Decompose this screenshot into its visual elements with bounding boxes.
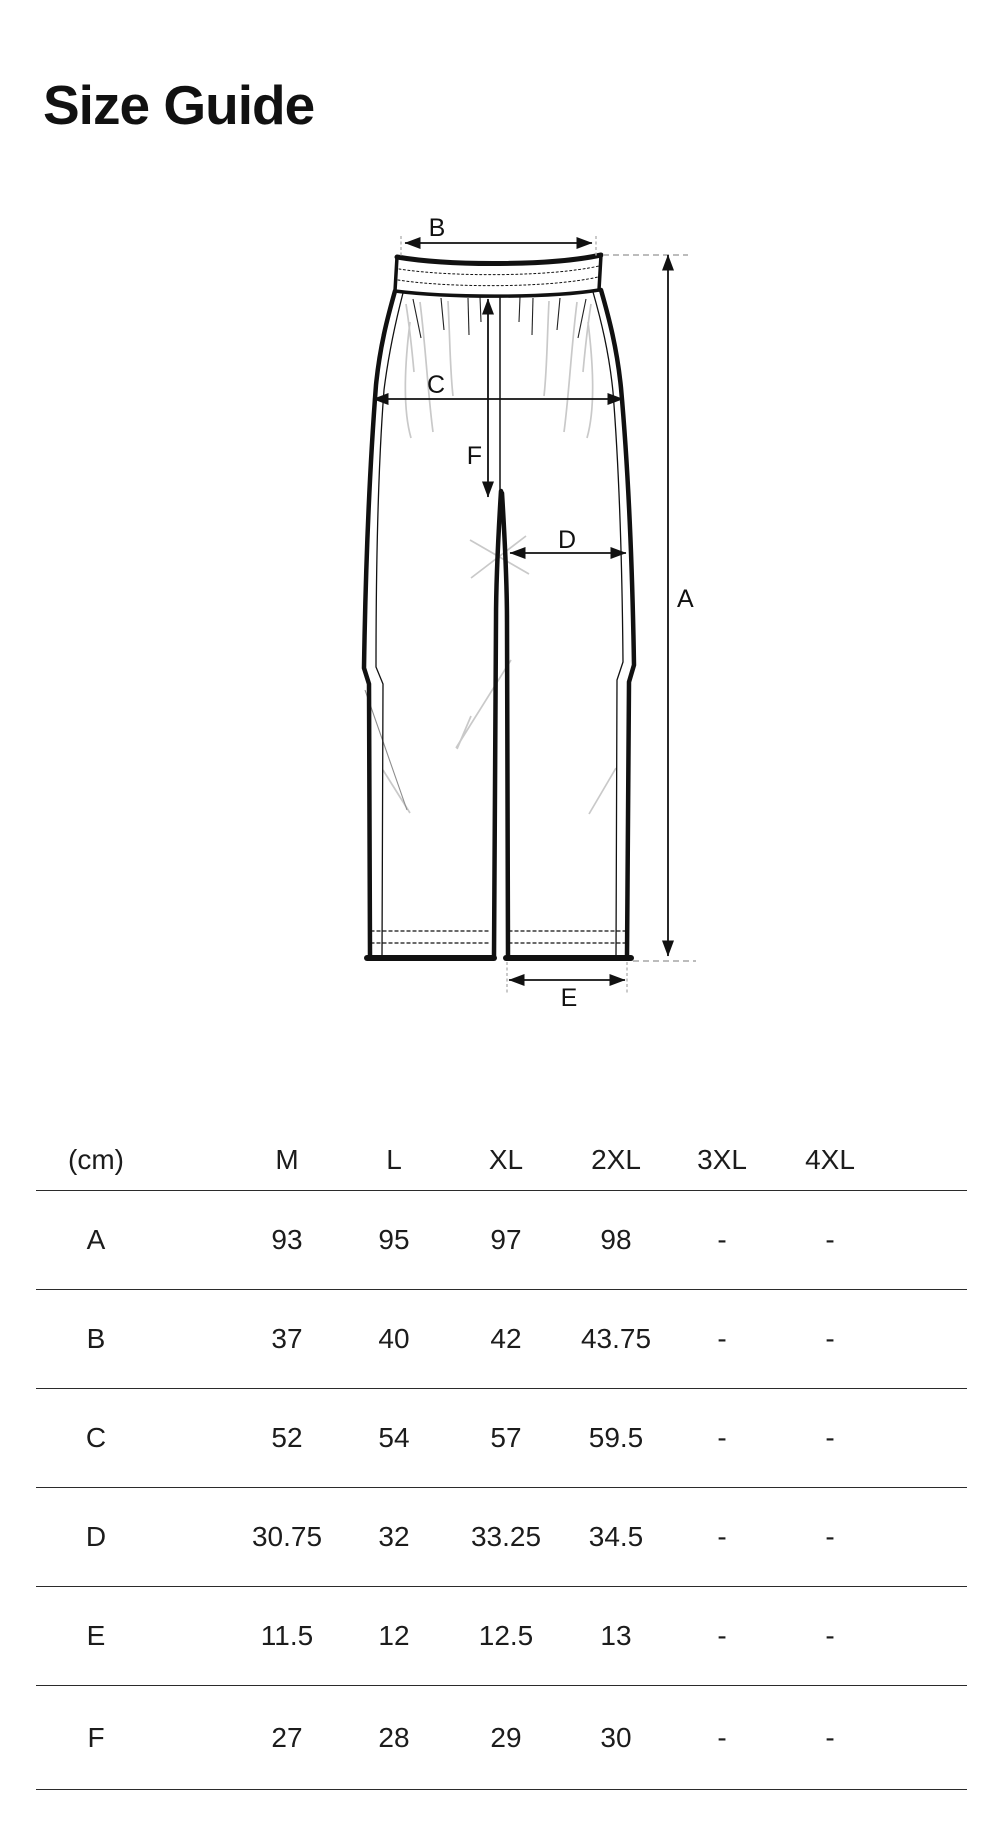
cell-value: 28 <box>339 1722 449 1754</box>
cell-value: 54 <box>339 1422 449 1454</box>
cell-value: - <box>667 1620 777 1652</box>
col-header-3xl: 3XL <box>667 1144 777 1176</box>
size-table-header: (cm) M L XL 2XL 3XL 4XL <box>36 1130 967 1190</box>
table-row-c: C 52 54 57 59.5 - - <box>36 1388 967 1487</box>
cell-value: - <box>775 1722 885 1754</box>
col-header-2xl: 2XL <box>561 1144 671 1176</box>
cell-value: 43.75 <box>561 1323 671 1355</box>
size-guide-page: Size Guide <box>0 0 1000 1837</box>
cell-value: 30.75 <box>232 1521 342 1553</box>
table-row-d: D 30.75 32 33.25 34.5 - - <box>36 1487 967 1586</box>
cell-value: 12 <box>339 1620 449 1652</box>
cell-value: - <box>775 1422 885 1454</box>
table-row-f: F 27 28 29 30 - - <box>36 1685 967 1790</box>
cell-value: 59.5 <box>561 1422 671 1454</box>
dim-label-c: C <box>427 371 445 399</box>
cell-value: - <box>775 1521 885 1553</box>
cell-value: - <box>667 1422 777 1454</box>
row-label: F <box>41 1722 151 1754</box>
cell-value: 57 <box>451 1422 561 1454</box>
dim-label-e: E <box>561 984 578 1012</box>
cell-value: - <box>667 1521 777 1553</box>
col-header-l: L <box>339 1144 449 1176</box>
pants-size-diagram: B C F D A E <box>0 0 1000 1080</box>
row-label: D <box>41 1521 151 1553</box>
dim-label-b: B <box>429 214 446 242</box>
cell-value: 52 <box>232 1422 342 1454</box>
cell-value: 40 <box>339 1323 449 1355</box>
row-label: E <box>41 1620 151 1652</box>
cell-value: 33.25 <box>451 1521 561 1553</box>
dim-label-a: A <box>677 585 694 613</box>
dim-label-f: F <box>467 442 482 470</box>
size-table: (cm) M L XL 2XL 3XL 4XL A 93 95 97 98 - … <box>36 1130 967 1790</box>
cell-value: 27 <box>232 1722 342 1754</box>
cell-value: 12.5 <box>451 1620 561 1652</box>
dimension-arrows <box>373 243 668 980</box>
cell-value: - <box>775 1323 885 1355</box>
col-header-m: M <box>232 1144 342 1176</box>
cell-value: - <box>667 1323 777 1355</box>
col-header-xl: XL <box>451 1144 561 1176</box>
cell-value: 11.5 <box>232 1620 342 1652</box>
cell-value: 34.5 <box>561 1521 671 1553</box>
row-label: A <box>41 1224 151 1256</box>
cell-value: 32 <box>339 1521 449 1553</box>
cell-value: 97 <box>451 1224 561 1256</box>
cell-value: 42 <box>451 1323 561 1355</box>
cell-value: 37 <box>232 1323 342 1355</box>
cell-value: 29 <box>451 1722 561 1754</box>
table-row-e: E 11.5 12 12.5 13 - - <box>36 1586 967 1685</box>
row-label: C <box>41 1422 151 1454</box>
table-row-b: B 37 40 42 43.75 - - <box>36 1289 967 1388</box>
dim-label-d: D <box>558 526 576 554</box>
cell-value: - <box>775 1224 885 1256</box>
dimension-guides <box>401 236 696 993</box>
cell-value: 30 <box>561 1722 671 1754</box>
cell-value: - <box>775 1620 885 1652</box>
table-row-a: A 93 95 97 98 - - <box>36 1190 967 1289</box>
row-label: B <box>41 1323 151 1355</box>
cell-value: 95 <box>339 1224 449 1256</box>
col-header-4xl: 4XL <box>775 1144 885 1176</box>
unit-header: (cm) <box>41 1144 151 1176</box>
cell-value: 93 <box>232 1224 342 1256</box>
cell-value: - <box>667 1722 777 1754</box>
cell-value: - <box>667 1224 777 1256</box>
cell-value: 98 <box>561 1224 671 1256</box>
pants-outline <box>364 255 634 958</box>
cell-value: 13 <box>561 1620 671 1652</box>
